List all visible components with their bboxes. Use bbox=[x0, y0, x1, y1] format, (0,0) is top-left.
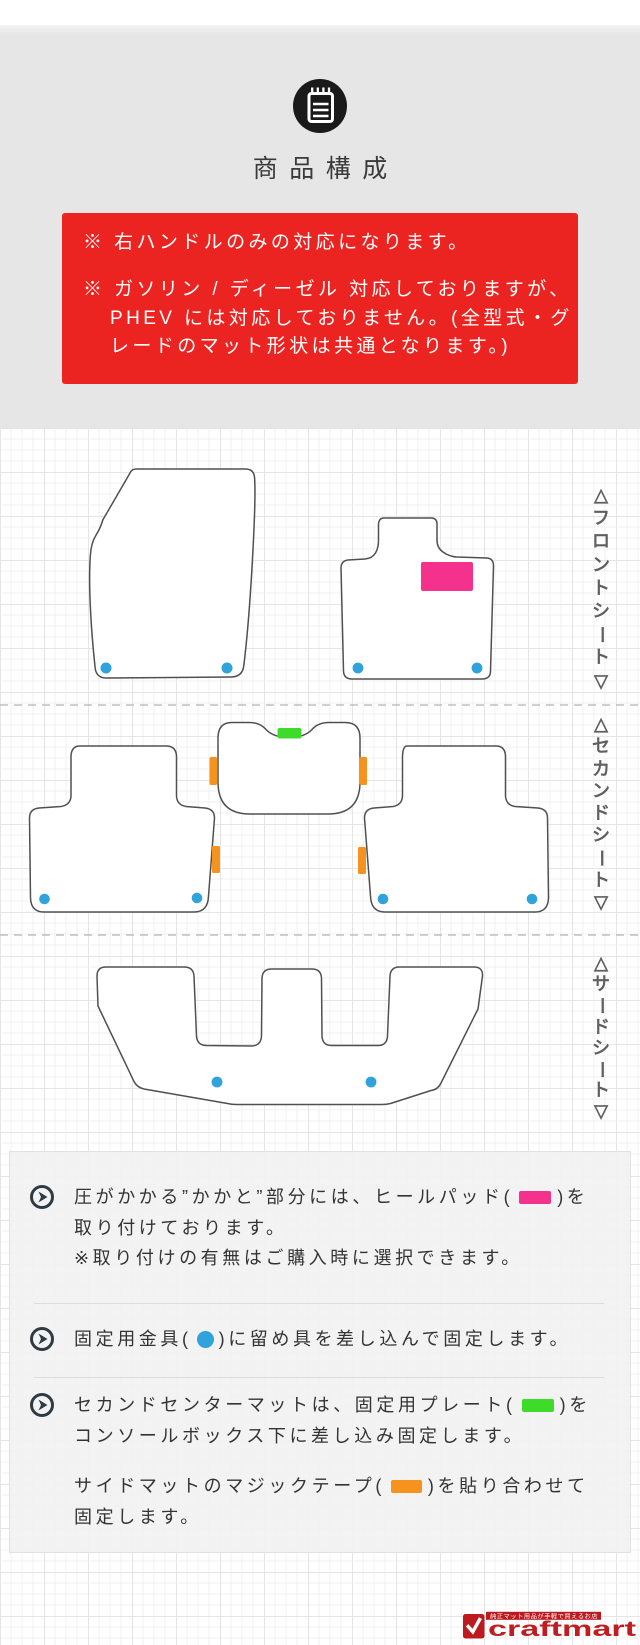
svg-text:craftmart: craftmart bbox=[488, 1617, 636, 1641]
